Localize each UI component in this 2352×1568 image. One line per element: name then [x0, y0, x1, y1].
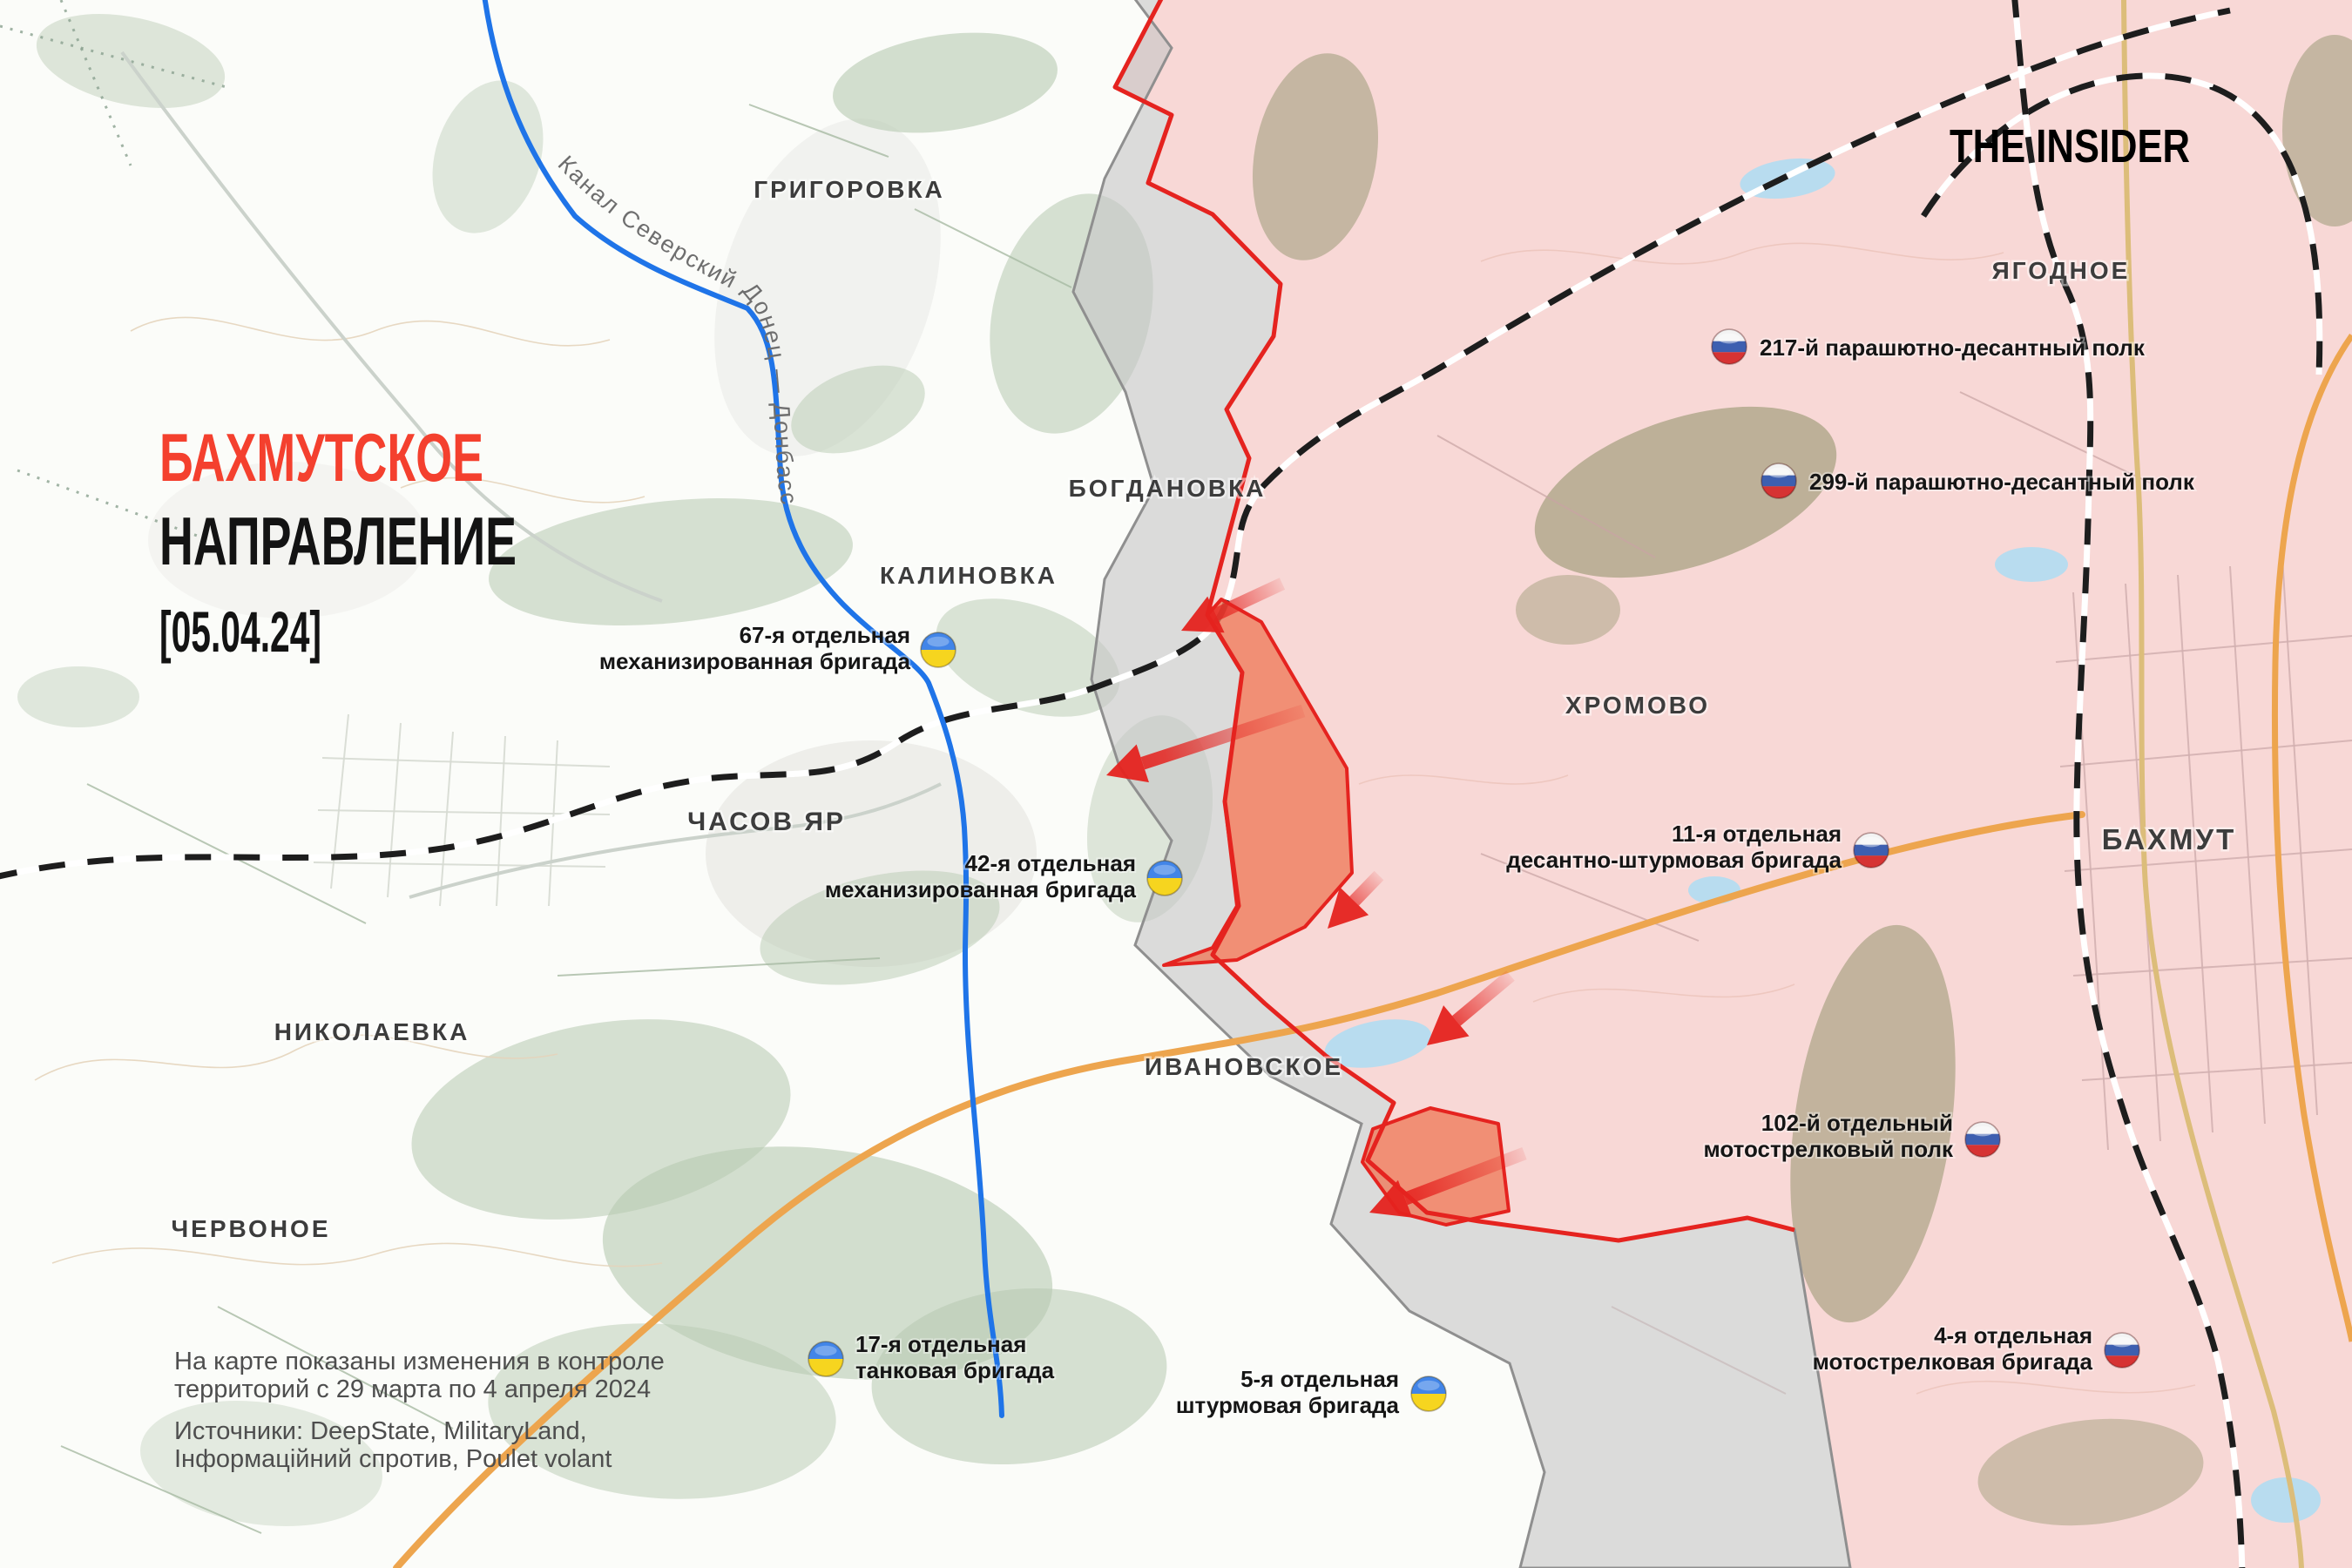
- city-label: ИВАНОВСКОЕ: [1145, 1053, 1343, 1080]
- unit-label-text: 42-я отдельная: [965, 850, 1136, 876]
- city-label: БОГДАНОВКА: [1069, 475, 1267, 502]
- city-label: ЧЕРВОНОЕ: [171, 1215, 330, 1242]
- city-label: ХРОМОВО: [1565, 692, 1710, 719]
- unit-label-text: десантно-штурмовая бригада: [1506, 847, 1842, 873]
- russia-flag-icon: [1853, 832, 1889, 868]
- map-date: [05.04.24]: [159, 599, 321, 664]
- unit-label-text: 17-я отдельная: [855, 1331, 1026, 1357]
- city-label: БАХМУТ: [2102, 823, 2236, 855]
- russia-flag-icon: [1964, 1121, 2001, 1158]
- unit-label-text: 299-й парашютно-десантный полк: [1809, 469, 2195, 495]
- ukraine-flag-icon: [808, 1342, 843, 1376]
- unit-label-text: 102-й отдельный: [1761, 1110, 1953, 1136]
- unit-label-text: 4-я отдельная: [1934, 1322, 2092, 1348]
- unit-label-text: механизированная бригада: [825, 876, 1137, 902]
- unit-label-text: мотострелковая бригада: [1813, 1348, 2093, 1375]
- city-label: ЧАСОВ ЯР: [687, 808, 846, 836]
- ukraine-flag-icon: [1147, 861, 1182, 896]
- city-label: ГРИГОРОВКА: [754, 176, 945, 203]
- russia-flag-icon: [1761, 463, 1797, 499]
- map: Канал Северский Донец — Донбасс ГРИГОРОВ…: [0, 0, 2352, 1568]
- footer-note-line1: На карте показаны изменения в контроле: [174, 1348, 665, 1375]
- city-label: НИКОЛАЕВКА: [274, 1018, 470, 1045]
- russia-flag-icon: [2104, 1332, 2140, 1369]
- footer-sources-line2: Інформаційний спротив, Poulet volant: [174, 1445, 612, 1473]
- page-title: БАХМУТСКОЕ: [159, 419, 483, 496]
- unit-label-217: 217-й парашютно-десантный полк: [1711, 328, 2146, 365]
- unit-label-text: мотострелковый полк: [1703, 1136, 1954, 1162]
- russia-flag-icon: [1711, 328, 1747, 365]
- insider-logo: THE INSIDER: [1950, 120, 2190, 172]
- footer-sources-line1: Источники: DeepState, MilitaryLand,: [174, 1417, 587, 1445]
- city-label: ЯГОДНОЕ: [1992, 257, 2131, 284]
- unit-label-text: 11-я отдельная: [1672, 821, 1842, 847]
- unit-label-299: 299-й парашютно-десантный полк: [1761, 463, 2195, 499]
- unit-label-text: механизированная бригада: [599, 648, 911, 674]
- footer-note-line2: территорий с 29 марта по 4 апреля 2024: [174, 1375, 651, 1403]
- city-label: КАЛИНОВКА: [880, 562, 1058, 589]
- ukraine-flag-icon: [921, 632, 956, 667]
- unit-label-text: 217-й парашютно-десантный полк: [1760, 335, 2146, 361]
- page-subtitle: НАПРАВЛЕНИЕ: [159, 503, 517, 579]
- ukraine-flag-icon: [1411, 1376, 1446, 1411]
- unit-label-text: 67-я отдельная: [740, 622, 910, 648]
- unit-label-text: 5-я отдельная: [1240, 1366, 1399, 1392]
- unit-label-text: штурмовая бригада: [1176, 1392, 1400, 1418]
- unit-label-text: танковая бригада: [855, 1357, 1055, 1383]
